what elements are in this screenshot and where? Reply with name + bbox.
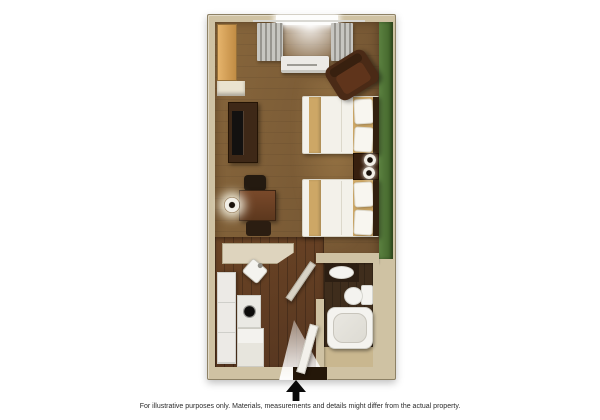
curtain-left xyxy=(257,23,283,61)
vanity-sink xyxy=(329,266,354,279)
tv xyxy=(232,111,243,155)
bed-2-pillow-bottom xyxy=(353,210,373,236)
bed-1-pillow-top xyxy=(353,99,373,125)
bed-1-accent-runner xyxy=(309,97,321,153)
bathroom-vanity xyxy=(325,264,359,282)
ac-unit xyxy=(281,56,329,73)
desk-chair xyxy=(244,175,266,191)
floor-plan-screenshot: For illustrative purposes only. Material… xyxy=(0,0,600,420)
green-accent-wall xyxy=(379,22,393,259)
bathroom-top-wall xyxy=(316,253,379,263)
bed-2-pillow-top xyxy=(353,182,373,208)
refrigerator xyxy=(217,272,236,364)
kitchen-cabinet xyxy=(237,328,264,367)
curtain-rod xyxy=(253,20,365,22)
desk-lamp xyxy=(224,197,240,213)
bathroom-floor-lower xyxy=(324,347,373,367)
bed-2 xyxy=(302,179,379,237)
bed-1-headboard xyxy=(373,97,379,153)
toilet-bowl xyxy=(344,287,363,305)
bed-1 xyxy=(302,96,379,154)
bathtub-basin xyxy=(333,313,367,343)
bed-1-pillow-bottom xyxy=(353,127,373,153)
bathroom-left-wall xyxy=(316,299,324,367)
table-lamp-2 xyxy=(363,167,375,179)
bed-2-duvet-fold xyxy=(341,181,342,235)
tv-dresser xyxy=(228,102,258,163)
nightstand xyxy=(353,153,379,180)
desk-stool xyxy=(246,221,271,236)
bathtub xyxy=(327,307,373,349)
table-lamp-1 xyxy=(364,154,376,166)
north-arrow-icon xyxy=(286,380,306,401)
bed-1-duvet-fold xyxy=(341,98,342,152)
closet-shelf xyxy=(217,81,245,96)
stove xyxy=(237,295,261,328)
floorplan-outer-walls xyxy=(207,14,396,380)
bed-2-accent-runner xyxy=(309,180,321,236)
bathroom-right-wall xyxy=(373,263,379,367)
ac-vent-line xyxy=(287,64,317,66)
bed-2-headboard xyxy=(373,180,379,236)
stove-burner xyxy=(243,305,256,318)
disclaimer-caption: For illustrative purposes only. Material… xyxy=(0,402,600,411)
closet-door xyxy=(217,24,237,81)
desk xyxy=(239,190,276,221)
